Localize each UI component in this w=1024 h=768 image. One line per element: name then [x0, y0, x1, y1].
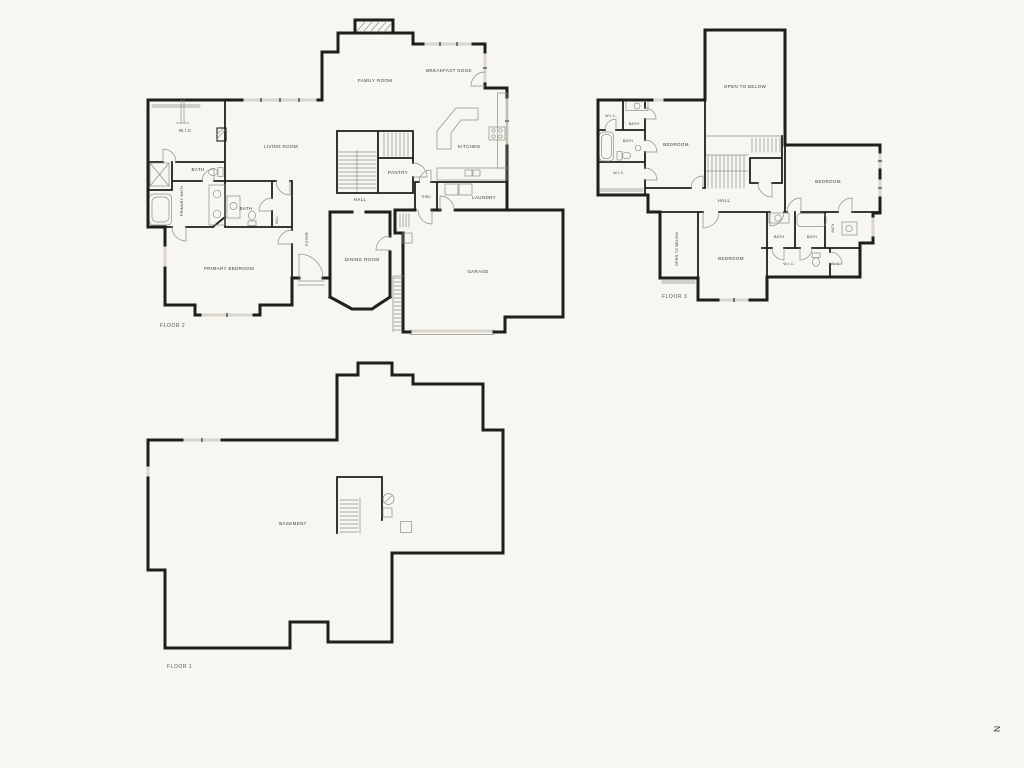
fireplace-icon [355, 20, 393, 33]
room-label-bedroom-s: BEDROOM [718, 256, 744, 261]
floor-plan-page: W.I.C. BATH LIVING ROOM FAMILY ROOM BREA… [0, 0, 1024, 768]
floor3-title: FLOOR 3 [662, 294, 687, 300]
room-label-dining-room: DINING ROOM [345, 257, 380, 262]
floor-plan-canvas: W.I.C. BATH LIVING ROOM FAMILY ROOM BREA… [0, 0, 1024, 768]
washer-dryer-icon [445, 184, 472, 195]
shower-icon [150, 163, 169, 186]
closet-rod-lines [152, 100, 200, 123]
room-label-living-room: LIVING ROOM [264, 144, 298, 149]
room-label-thru: THRU [421, 195, 431, 199]
electrical-panel-icon [383, 494, 394, 505]
north-label: N [992, 726, 1002, 732]
room-label-bath-s3: BATH [831, 223, 835, 232]
range-icon [489, 127, 505, 140]
room-label-primary-bedroom: PRIMARY BEDROOM [204, 266, 254, 271]
room-label-pantry: PANTRY [388, 170, 408, 175]
room-label-bath-nw: BATH [629, 122, 640, 126]
room-label-foyer: FOYER [305, 232, 309, 246]
room-label-kitchen: KITCHEN [458, 144, 480, 149]
room-label-bath-s1: BATH [774, 235, 785, 239]
floor1-exterior-walls [148, 363, 503, 648]
toilet-icon [617, 152, 631, 161]
bathtub-icon [600, 132, 614, 161]
room-label-open-to-below: OPEN TO BELOW [724, 84, 767, 89]
floor2-interior-walls [148, 100, 507, 278]
north-arrow-icon: N [956, 716, 1002, 741]
stairs-icon [706, 136, 781, 188]
toilet-icon [209, 168, 224, 177]
room-label-bath-s2: BATH [807, 235, 818, 239]
stairs-icon [339, 133, 408, 191]
room-label-breakfast-nook: BREAKFAST NOOK [426, 68, 472, 73]
door-arcs [605, 108, 852, 264]
utility-box-icon [383, 508, 392, 517]
kitchen-island-icon [437, 108, 478, 149]
room-label-hall: HALL [718, 198, 731, 203]
vanity-sink-icon [227, 196, 240, 218]
vanity-sink-icon [769, 213, 789, 223]
room-label-bath-lower: BATH [239, 206, 252, 211]
floor1-plan: BASEMENT FLOOR 1 [148, 363, 503, 670]
room-label-bedroom-e: BEDROOM [815, 179, 841, 184]
room-label-family-room: FAMILY ROOM [358, 78, 393, 83]
room-label-wic: W.I.C. [179, 128, 193, 133]
bathtub-icon [797, 214, 826, 227]
bathtub-icon [150, 194, 172, 225]
sink-icon [635, 145, 641, 151]
room-label-bath-upper: BATH [191, 167, 204, 172]
room-label-hall: HALL [354, 197, 367, 202]
kitchen-counter [437, 93, 507, 180]
room-label-wic-w: W.I.C. [613, 171, 625, 175]
toilet-icon [812, 253, 820, 266]
floor3-plan: OPEN TO BELOW W.I.C. BATH BATH W.I.C. BE… [598, 30, 882, 302]
closet-rod-lines [600, 189, 643, 191]
room-label-basement: BASEMENT [279, 521, 307, 526]
room-label-hall-closet: HALL [275, 216, 279, 225]
floor1-stair-room-walls [337, 477, 382, 533]
room-label-wic-s2: W.I.C. [829, 262, 841, 266]
utility-box-icon [401, 522, 412, 533]
vanity-sink-icon [842, 222, 857, 235]
room-label-open-to-below-strip: OPEN TO BELOW [675, 232, 679, 266]
stairs-icon [340, 498, 360, 533]
room-label-wic-nw: W.I.C. [605, 114, 617, 118]
floor2-title: FLOOR 2 [160, 323, 185, 329]
floor2-plan: W.I.C. BATH LIVING ROOM FAMILY ROOM BREA… [148, 20, 563, 335]
floor1-title: FLOOR 1 [167, 664, 192, 670]
floor1-windows [148, 439, 222, 479]
toilet-icon [248, 211, 256, 226]
room-label-bedroom-w: BEDROOM [663, 142, 689, 147]
room-label-primary-bath: PRIMARY BATH [180, 186, 184, 216]
room-label-wic-s1: W.I.C. [783, 262, 795, 266]
room-label-garage: GARAGE [467, 269, 488, 274]
room-label-bath-w: BATH [623, 139, 634, 143]
room-label-laundry: LAUNDRY [472, 195, 496, 200]
